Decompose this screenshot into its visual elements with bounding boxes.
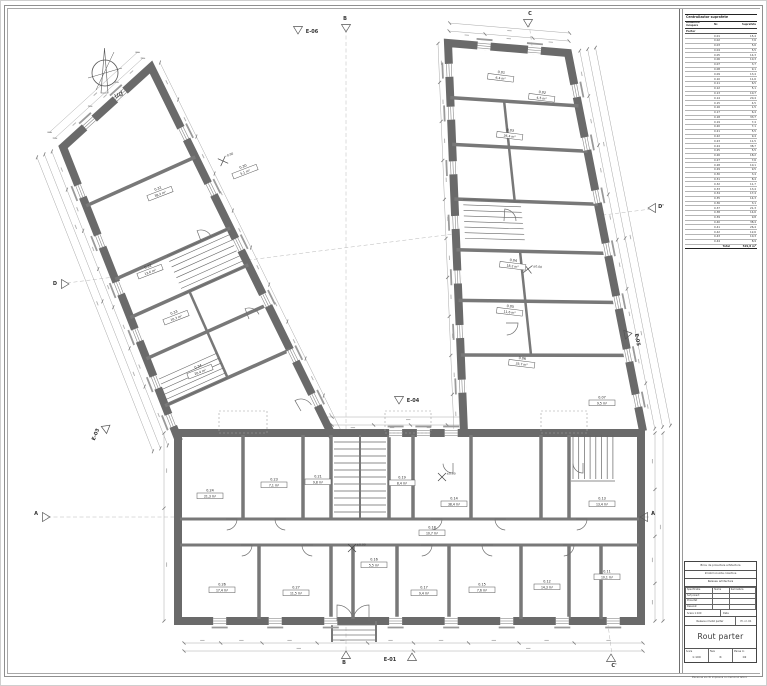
scale-row: Scara 1:100 Data xyxy=(685,610,756,617)
svg-text:0.23: 0.23 xyxy=(270,477,278,481)
svg-text:0.24: 0.24 xyxy=(206,488,214,492)
svg-text:8,4 m²: 8,4 m² xyxy=(397,481,408,485)
svg-text:9,4 m²: 9,4 m² xyxy=(419,591,430,595)
svg-text:D: D xyxy=(53,281,57,287)
svg-text:0.26: 0.26 xyxy=(218,582,226,586)
svg-text:13,4 m²: 13,4 m² xyxy=(596,502,609,506)
drawing-title: Rout parter xyxy=(685,626,756,649)
section-marker: D xyxy=(53,280,69,289)
section-marker: E-03 xyxy=(91,422,110,441)
right-panel: Centralizator suprafete Denumire incaper… xyxy=(679,9,760,673)
section-marker: C' xyxy=(607,654,618,669)
scale-value: 1:100 xyxy=(695,612,702,615)
schedule-col-area: Suprafata xyxy=(731,22,757,29)
svg-text:D': D' xyxy=(658,204,664,210)
svg-text:-0.90: -0.90 xyxy=(225,151,234,158)
svg-text:0.12: 0.12 xyxy=(543,579,551,583)
svg-text:5,5 m²: 5,5 m² xyxy=(369,563,380,567)
svg-text:0.13: 0.13 xyxy=(598,496,606,500)
svg-text:0.11: 0.11 xyxy=(603,569,611,573)
svg-text:E-01: E-01 xyxy=(384,657,397,663)
scale-label: Scara xyxy=(687,612,694,615)
title-block-bar-2: Imobil locuinte colective xyxy=(685,571,756,579)
floor-plan-generated: ±0.00±0.00-0.90±0.000.3138,2 m²0.305,1 m… xyxy=(34,11,672,669)
svg-text:0.19: 0.19 xyxy=(398,475,406,479)
spec-row-3: Desenat xyxy=(686,604,713,609)
section-marker: C xyxy=(524,11,533,27)
svg-text:±0.00: ±0.00 xyxy=(447,472,456,476)
svg-text:0.21: 0.21 xyxy=(314,474,322,478)
svg-text:9,8 m²: 9,8 m² xyxy=(313,480,324,484)
svg-text:0.17: 0.17 xyxy=(420,585,428,589)
svg-text:21,3 m²: 21,3 m² xyxy=(204,494,217,498)
sheet-footer-note: Plansa se va citi impreuna cu memoriul t… xyxy=(680,677,759,679)
svg-text:B: B xyxy=(342,660,346,666)
schedule-total-label: Total xyxy=(685,244,731,249)
project-name: Releveu imobil parter xyxy=(685,617,736,625)
schedule-total-value: 529,8 m² xyxy=(731,244,757,249)
date-label: Data xyxy=(721,610,756,616)
section-marker: E-01 xyxy=(384,653,417,663)
title-block-bar-3: Releveu arhitectura xyxy=(685,579,756,587)
bottom-cell-scale: Scara 1:100 xyxy=(685,649,709,662)
room-label: 0.305,1 m² xyxy=(230,160,258,179)
drawing-sheet: ±0.00±0.00-0.90±0.000.3138,2 m²0.305,1 m… xyxy=(0,0,767,686)
svg-text:10,7 m²: 10,7 m² xyxy=(426,531,439,535)
schedule-body: 0.0115,40.027,60.035,60.045,50.0514,30.0… xyxy=(685,34,757,244)
svg-text:7,1 m²: 7,1 m² xyxy=(269,483,280,487)
svg-text:A: A xyxy=(34,511,38,517)
bottom-cell-sheet: Plansa nr. 02 xyxy=(733,649,756,662)
svg-text:E-06: E-06 xyxy=(306,29,319,35)
section-marker: E-06 xyxy=(294,27,319,36)
room-schedule: Centralizator suprafete Denumire incaper… xyxy=(685,14,757,249)
svg-text:0.27: 0.27 xyxy=(292,585,300,589)
svg-text:38,4 m²: 38,4 m² xyxy=(448,502,461,506)
svg-text:11,5 m²: 11,5 m² xyxy=(290,591,303,595)
svg-text:7,6 m²: 7,6 m² xyxy=(477,588,488,592)
svg-text:9,5 m²: 9,5 m² xyxy=(597,401,608,405)
svg-text:0.07: 0.07 xyxy=(598,395,606,399)
title-block: Birou de proiectare arhitectura Imobil l… xyxy=(684,561,757,663)
section-marker: E-04 xyxy=(395,397,420,405)
schedule-col-number: Nr. xyxy=(713,22,731,29)
svg-text:C: C xyxy=(528,11,532,17)
svg-text:E-03: E-03 xyxy=(91,427,101,441)
section-marker: B xyxy=(342,651,351,666)
svg-text:0.15: 0.15 xyxy=(478,582,486,586)
svg-text:14,3 m²: 14,3 m² xyxy=(541,585,554,589)
svg-text:E-04: E-04 xyxy=(407,398,420,404)
svg-text:0.14: 0.14 xyxy=(450,496,458,500)
level-mark: -0.90 xyxy=(217,151,236,166)
building-fill xyxy=(63,43,643,621)
title-block-bar-1: Birou de proiectare arhitectura xyxy=(685,562,756,570)
section-marker: A xyxy=(34,511,50,522)
project-row: Releveu imobil parter Pr. nr. 01 xyxy=(685,617,756,626)
svg-text:E-05: E-05 xyxy=(633,333,641,347)
svg-text:10,1 m²: 10,1 m² xyxy=(601,575,614,579)
svg-text:0.18: 0.18 xyxy=(428,525,436,529)
section-marker: D' xyxy=(648,204,664,213)
svg-text:±0.00: ±0.00 xyxy=(357,543,366,547)
svg-text:C': C' xyxy=(611,663,617,669)
svg-text:A: A xyxy=(651,511,655,517)
svg-text:17,4 m²: 17,4 m² xyxy=(216,588,229,592)
schedule-col-name: Denumire incapere xyxy=(685,22,713,29)
floor-plan: ±0.00±0.00-0.90±0.000.3138,2 m²0.305,1 m… xyxy=(1,1,679,686)
schedule-table: Denumire incapere Nr. Suprafata Parter 0… xyxy=(685,22,757,250)
svg-text:0.16: 0.16 xyxy=(370,557,378,561)
bottom-cell-phase: Faza R xyxy=(709,649,733,662)
svg-text:B: B xyxy=(343,16,347,22)
project-number: Pr. nr. 01 xyxy=(736,617,756,625)
title-block-bottom-row: Scara 1:100 Faza R Plansa nr. 02 xyxy=(685,649,756,662)
signature-table: Specificatie Nume Semnatura Sef proiect … xyxy=(685,587,756,610)
